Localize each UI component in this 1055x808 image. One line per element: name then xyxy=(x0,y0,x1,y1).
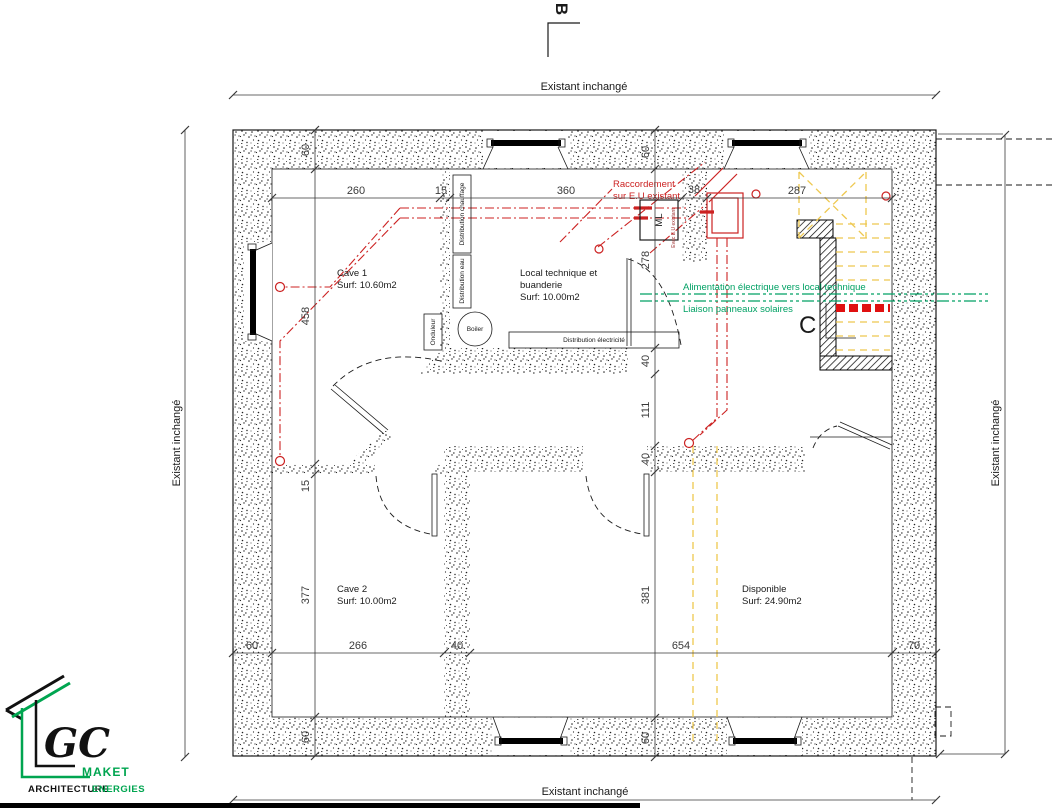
dim-bottom-60: 60 xyxy=(246,640,258,652)
section-mark-c: C xyxy=(799,312,816,339)
boundary-labels: Existant inchangé Existant inchangé Exis… xyxy=(171,81,1002,798)
window-bottom-2 xyxy=(727,717,802,756)
door-disponible-northeast xyxy=(810,422,892,449)
floor-plan-drawing: Alimentation électrique vers local techn… xyxy=(0,0,1055,808)
interior-walls xyxy=(272,169,805,717)
distribution-eau-label: Distribution eau xyxy=(459,258,466,304)
dim-bottom-40: 40 xyxy=(451,640,463,652)
dim-left-60b: 60 xyxy=(300,731,312,743)
boundary-label-bottom: Existant inchangé xyxy=(542,786,629,798)
stair-walls xyxy=(797,220,892,370)
doors xyxy=(331,258,892,536)
titleblock-edge xyxy=(0,803,640,808)
dim-bottom-266: 266 xyxy=(349,640,367,652)
floor-plan-page: Alimentation électrique vers local techn… xyxy=(0,0,1055,808)
cave1-name: Cave 1 xyxy=(337,268,367,279)
dimension-lines xyxy=(181,91,1009,804)
distribution-chauffage-label: Distribution chauffage xyxy=(459,182,466,245)
windows xyxy=(233,130,809,756)
door-cave1 xyxy=(331,357,441,434)
dim-top-15: 15 xyxy=(435,185,447,197)
dim-mid-40b: 40 xyxy=(640,453,652,465)
dim-top-260: 260 xyxy=(347,185,365,197)
dim-top-287: 287 xyxy=(788,185,806,197)
local-technique-name2: buanderie xyxy=(520,280,562,291)
door-disponible-west xyxy=(586,474,649,536)
red-note-line1: Raccordement xyxy=(613,179,675,190)
room-labels: Cave 1 Surf: 10.60m2 Local technique et … xyxy=(337,268,802,607)
cave1-surface: Surf: 10.60m2 xyxy=(337,280,397,291)
cave2-surface: Surf: 10.00m2 xyxy=(337,596,397,607)
section-mark-b: B xyxy=(552,3,571,15)
boiler-label: Boiler xyxy=(467,326,484,333)
green-note-liaison: Liaison panneaux solaires xyxy=(683,304,793,315)
red-note-evac: Evac E.U existant xyxy=(671,208,677,248)
distribution-electricite-label: Distribution électricité xyxy=(563,337,625,344)
disponible-surface: Surf: 24.90m2 xyxy=(742,596,802,607)
dim-bottom-654: 654 xyxy=(672,640,690,652)
boundary-label-right: Existant inchangé xyxy=(990,400,1002,487)
boundary-label-left: Existant inchangé xyxy=(171,400,183,487)
dim-left-458: 458 xyxy=(300,307,312,325)
dim-left-60a: 60 xyxy=(300,144,312,156)
dim-top-360: 360 xyxy=(557,185,575,197)
window-top-1 xyxy=(483,130,568,169)
logo-gc-maket: GC MAKET ARCHITECTURE ENERGIES xyxy=(6,676,145,795)
dim-mid-60b: 60 xyxy=(640,732,652,744)
red-notes: Raccordement sur E.U existant Evac E.U e… xyxy=(613,179,680,248)
boundary-label-top: Existant inchangé xyxy=(541,81,628,93)
dim-bottom-70: 70 xyxy=(908,640,920,652)
dim-left-377: 377 xyxy=(300,586,312,604)
logo-energies-text: ENERGIES xyxy=(92,784,145,795)
dim-mid-278: 278 xyxy=(640,251,652,269)
dim-mid-40a: 40 xyxy=(640,355,652,367)
dim-top-38: 38 xyxy=(688,184,700,196)
onduleur-label: Onduleur xyxy=(430,318,437,346)
local-technique-name1: Local technique et xyxy=(520,268,597,279)
dim-left-15: 15 xyxy=(300,480,312,492)
logo-gc-text: GC xyxy=(44,720,110,767)
window-bottom-1 xyxy=(493,717,568,756)
window-top-2 xyxy=(724,130,809,169)
disponible-name: Disponible xyxy=(742,584,786,595)
dim-mid-60a: 60 xyxy=(640,146,652,158)
ml-label: ML xyxy=(654,213,665,226)
cave2-name: Cave 2 xyxy=(337,584,367,595)
door-local-technique xyxy=(627,258,681,346)
logo-maket-text: MAKET xyxy=(82,765,130,779)
local-technique-surface: Surf: 10.00m2 xyxy=(520,292,580,303)
green-note-alimentation: Alimentation électrique vers local techn… xyxy=(683,282,866,293)
door-cave2 xyxy=(376,474,437,536)
dim-mid-111: 111 xyxy=(640,402,652,419)
dim-mid-381: 381 xyxy=(640,586,652,604)
red-note-line2: sur E.U existant xyxy=(613,191,680,202)
